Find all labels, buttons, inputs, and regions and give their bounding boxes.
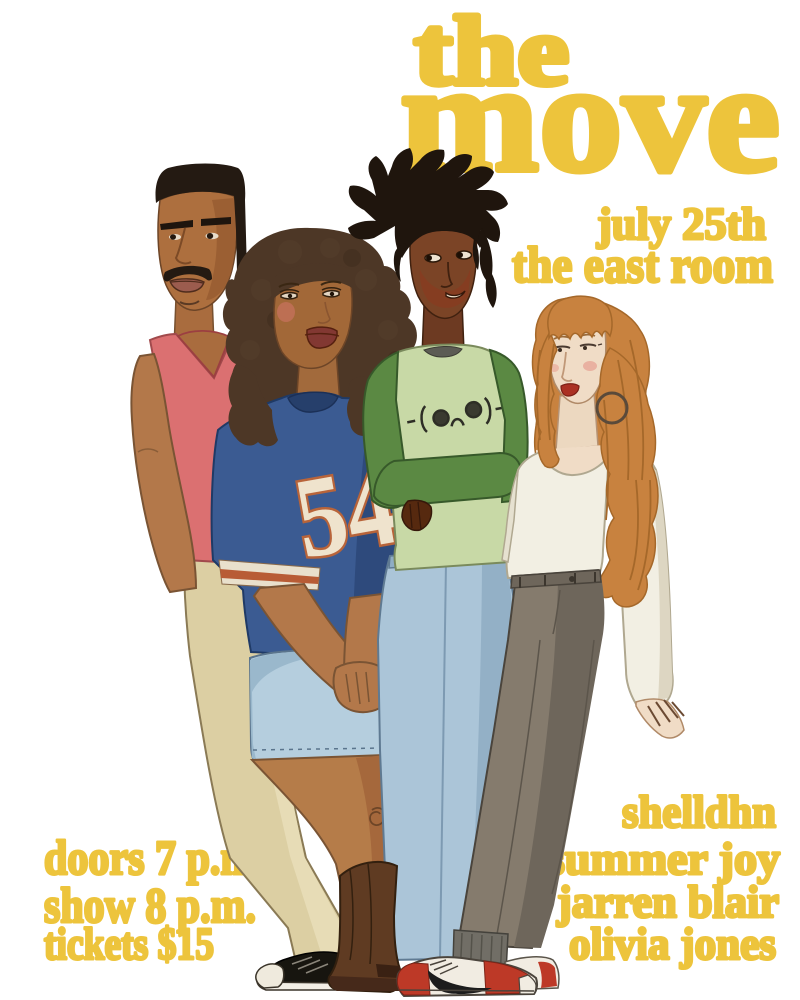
svg-text:olivia jones: olivia jones <box>569 918 776 969</box>
svg-text:tickets $15: tickets $15 <box>44 918 214 969</box>
svg-text:shelldhn: shelldhn <box>622 786 776 837</box>
svg-text:the east room: the east room <box>512 238 773 294</box>
